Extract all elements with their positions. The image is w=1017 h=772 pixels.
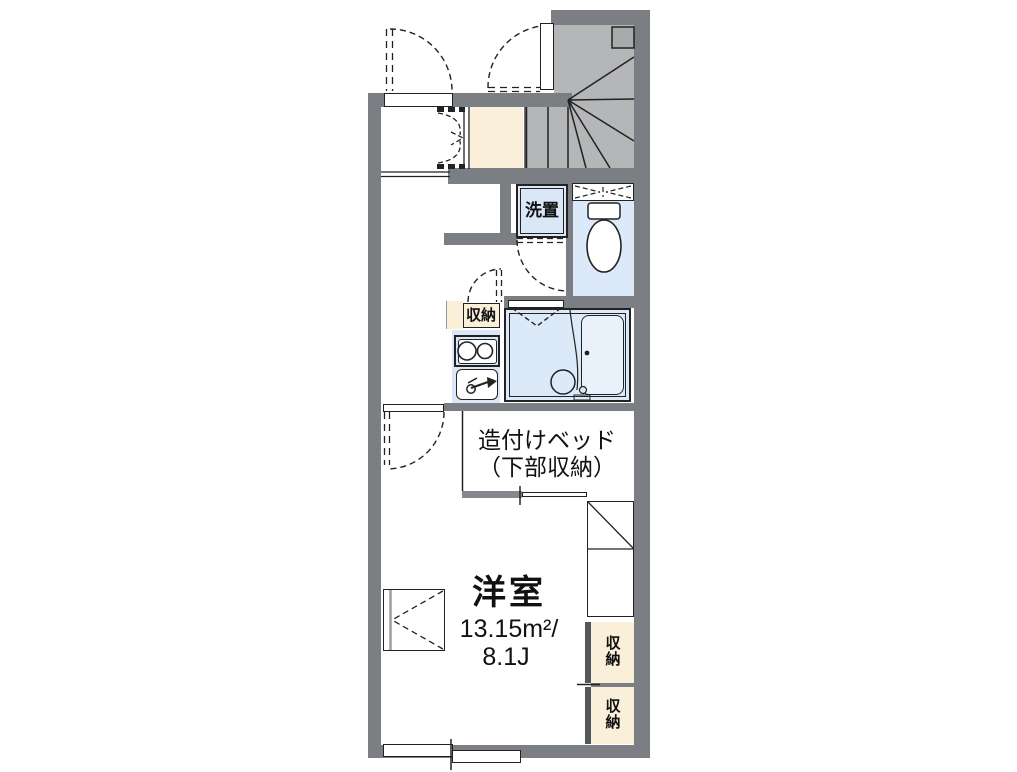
sink: [456, 369, 498, 400]
bed-label-line2: （下部収納）: [478, 455, 616, 479]
washroom-door-swing: [517, 239, 568, 292]
kitchen-door-swing: [468, 269, 502, 302]
outer-wall-left: [368, 93, 381, 758]
storage-upper-label: 収納: [604, 636, 622, 668]
laundry-nook-bottom-wall: [444, 233, 517, 245]
window-main-bottom-2: [452, 750, 521, 763]
stair-door-swing: [488, 26, 541, 92]
toilet-window: [572, 183, 634, 201]
toilet-floor: [573, 200, 634, 296]
bathtub: [581, 315, 624, 395]
neighbor-door-swing: [387, 29, 453, 92]
corridor-divider: [381, 172, 450, 177]
bed-top-wall: [444, 403, 634, 411]
window-main-bottom-1: [383, 744, 453, 757]
floor-plan: 洋室 13.15m²/ 8.1J 造付けベッド （下部収納） 洗置 収納 収納 …: [0, 0, 1017, 772]
entry-step-edge: [464, 107, 469, 169]
bed-bottom-ledge: [462, 491, 522, 498]
kitchen-storage-strip: [446, 301, 463, 329]
entry-floor: [470, 107, 523, 168]
bed-label-line1: 造付けベッド: [478, 428, 616, 452]
wall-cabinet: [383, 589, 445, 651]
bath-door-leaf: [508, 300, 564, 308]
main-room-door-opening: [383, 404, 444, 412]
laundry-label: 洗置: [525, 202, 559, 220]
main-room-area-sqm: 13.15m²/: [460, 616, 559, 642]
storage-lower-label: 収納: [604, 699, 622, 731]
entry-bifold-door: [437, 110, 465, 167]
kitchen-storage-label: 収納: [466, 308, 496, 324]
main-room-door-swing: [385, 412, 445, 469]
stairs-floor-lower: [526, 105, 634, 168]
entry-bottom-wall: [448, 168, 634, 184]
outer-wall-right: [634, 10, 650, 758]
neighbor-door-opening: [384, 93, 453, 107]
main-room-area-tatami: 8.1J: [482, 644, 529, 670]
stove: [454, 335, 500, 367]
fridge-space: [587, 501, 634, 617]
bed-front-panel: [522, 492, 587, 497]
main-room-label: 洋室: [472, 576, 546, 612]
stair-door-leaf: [540, 23, 554, 90]
